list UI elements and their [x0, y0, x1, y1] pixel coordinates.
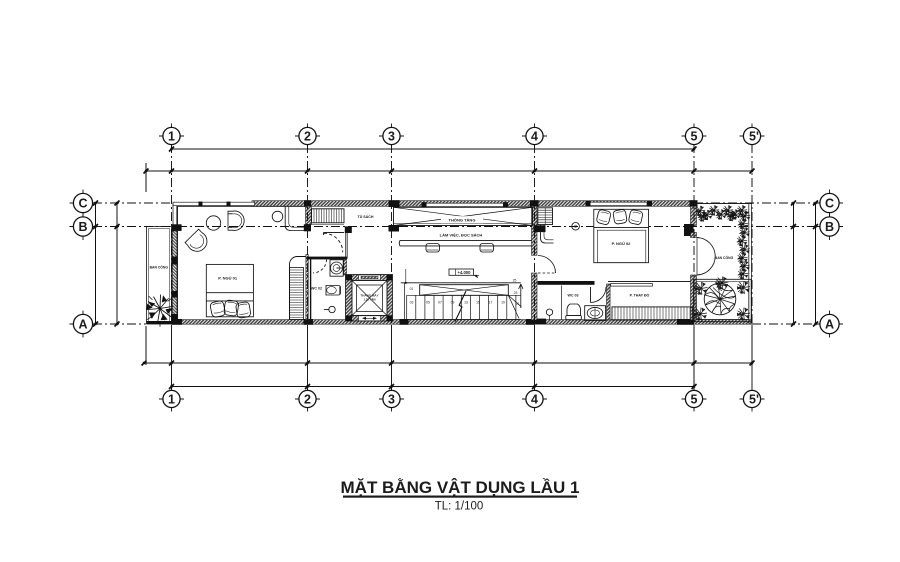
- svg-text:13: 13: [464, 301, 468, 305]
- svg-text:25: 25: [513, 279, 517, 283]
- svg-text:BAN CÔNG: BAN CÔNG: [150, 265, 169, 270]
- svg-text:2: 2: [304, 393, 311, 407]
- svg-text:01: 01: [410, 287, 414, 291]
- svg-text:1: 1: [168, 393, 175, 407]
- svg-text:WC 02: WC 02: [311, 287, 322, 291]
- svg-text:09: 09: [451, 301, 455, 305]
- svg-text:07: 07: [438, 301, 442, 305]
- svg-text:5: 5: [691, 393, 698, 407]
- svg-text:C: C: [78, 197, 87, 211]
- svg-text:05: 05: [426, 301, 430, 305]
- svg-text:B: B: [78, 220, 87, 234]
- svg-text:1,35 TẤN: 1,35 TẤN: [364, 297, 376, 302]
- svg-text:C: C: [825, 197, 834, 211]
- svg-text:4: 4: [531, 130, 538, 144]
- svg-text:15: 15: [476, 301, 480, 305]
- svg-text:1: 1: [168, 130, 175, 144]
- svg-text:B: B: [825, 220, 834, 234]
- svg-text:BAN CÔNG: BAN CÔNG: [715, 255, 734, 260]
- svg-text:P. NGỦ 02: P. NGỦ 02: [612, 241, 632, 246]
- svg-text:TỦ SÁCH: TỦ SÁCH: [358, 214, 374, 219]
- svg-text:17: 17: [489, 301, 493, 305]
- svg-text:WC 03: WC 03: [568, 294, 579, 298]
- svg-text:2: 2: [304, 130, 311, 144]
- svg-text:21: 21: [516, 302, 520, 306]
- svg-text:P. THAY ĐỒ: P. THAY ĐỒ: [630, 293, 650, 298]
- svg-text:3: 3: [388, 130, 395, 144]
- svg-text:5': 5': [749, 393, 759, 407]
- svg-text:LÀM VIỆC, ĐỌC SÁCH: LÀM VIỆC, ĐỌC SÁCH: [440, 232, 483, 237]
- svg-text:A: A: [78, 318, 87, 332]
- svg-text:03: 03: [410, 301, 414, 305]
- svg-text:P. NGỦ 01: P. NGỦ 01: [218, 275, 238, 280]
- svg-text:5: 5: [691, 130, 698, 144]
- svg-text:TL: 1/100: TL: 1/100: [435, 501, 484, 513]
- svg-text:THÔNG TẦNG: THÔNG TẦNG: [449, 218, 476, 223]
- svg-text:3: 3: [388, 393, 395, 407]
- svg-text:19: 19: [501, 301, 505, 305]
- svg-text:5': 5': [749, 130, 759, 144]
- svg-text:A: A: [825, 318, 834, 332]
- svg-text:MẶT BẰNG VẬT DỤNG LẦU 1: MẶT BẰNG VẬT DỤNG LẦU 1: [341, 478, 580, 497]
- svg-text:4: 4: [531, 393, 538, 407]
- svg-text:+4.000: +4.000: [458, 270, 472, 275]
- svg-text:23: 23: [514, 291, 518, 295]
